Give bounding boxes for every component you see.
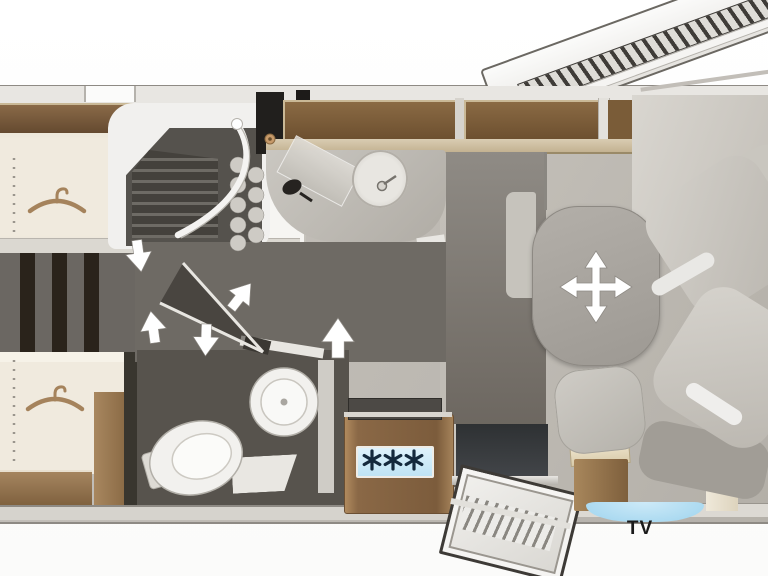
window-band-1 [283,100,459,144]
bedroom-window [84,86,136,102]
fridge-top-rim [344,412,452,417]
tv-label: TV [616,518,664,542]
shower-bench-slats [132,150,218,238]
overhead-cabinet [608,100,632,142]
freezer-panel [356,446,434,478]
motorhome-floorplan: TV [0,0,768,576]
bathroom-wall-dark [124,352,137,510]
bed-side-panel [94,392,126,510]
table-pedestal [544,152,547,210]
dinette-table [532,206,660,366]
bedroom-steps [20,248,112,354]
footstool-seat [552,364,648,457]
bed-footboard [0,470,92,510]
window-pillar-1 [455,98,464,142]
bathroom-wall-right [318,360,334,493]
window-band-2 [464,100,604,144]
